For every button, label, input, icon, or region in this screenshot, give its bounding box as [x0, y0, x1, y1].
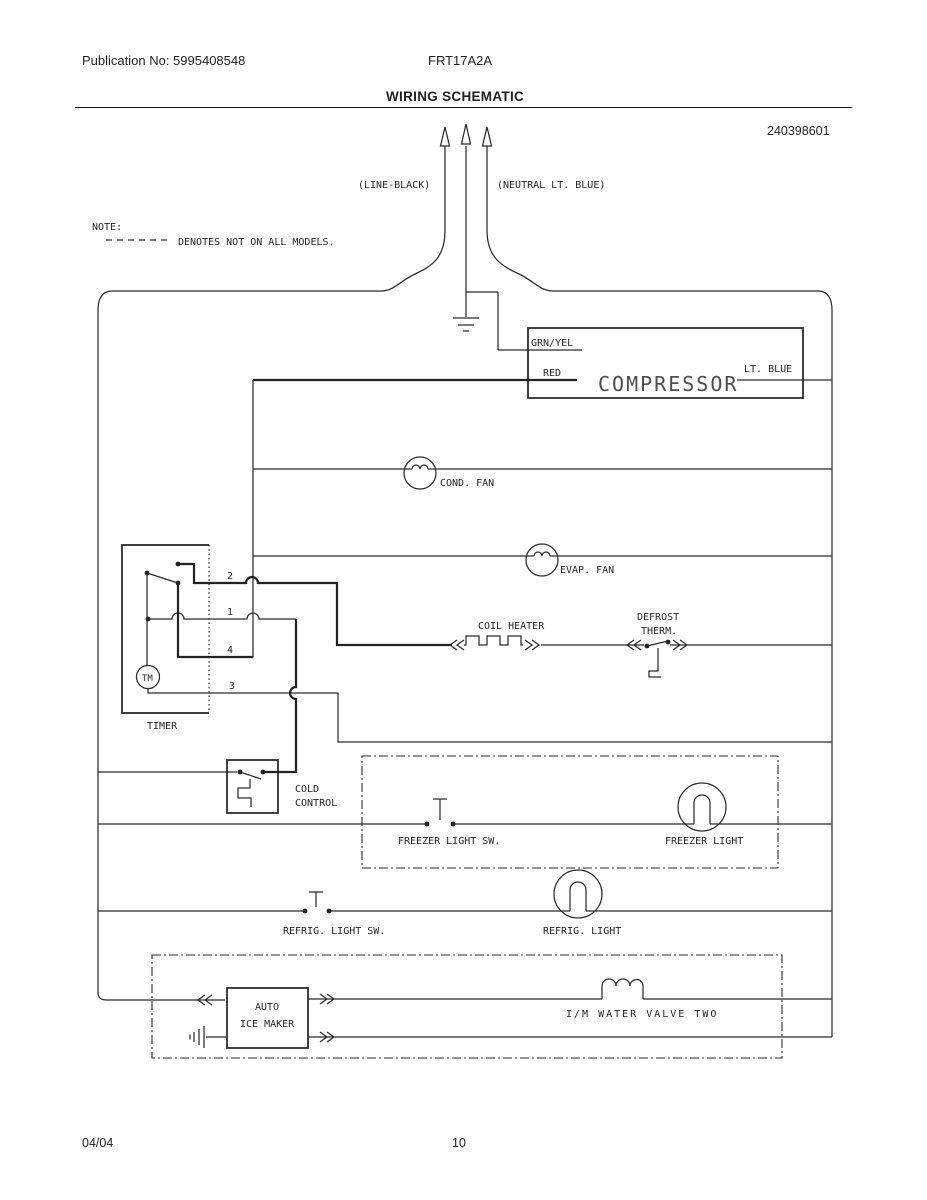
- earth-ground-icon: [453, 292, 479, 331]
- footer-page-number: 10: [452, 1136, 466, 1150]
- neutral-label: (NEUTRAL LT. BLUE): [497, 180, 605, 191]
- line-black-label: (LINE-BLACK): [358, 180, 430, 191]
- footer-date: 04/04: [82, 1136, 113, 1150]
- freezer-light-switch-icon: [433, 799, 447, 820]
- ice-maker-box: [227, 988, 308, 1048]
- defrost-label-2: THERM.: [641, 626, 677, 637]
- power-plug: (LINE-BLACK) (NEUTRAL LT. BLUE): [358, 124, 605, 191]
- evap-fan-label: EVAP. FAN: [560, 565, 614, 576]
- coil-heater-label: COIL HEATER: [478, 621, 545, 632]
- ice-maker-optional-box: [152, 955, 782, 1058]
- plug-prong-ground-icon: [462, 124, 471, 144]
- defrost-label-1: DEFROST: [637, 612, 679, 623]
- left-rail-wire: [98, 146, 445, 1000]
- red-label: RED: [543, 368, 561, 379]
- terminal1-wire: [148, 613, 296, 619]
- evap-fan-motor-icon: [526, 544, 558, 576]
- connector-left-icon: [450, 640, 464, 650]
- terminal2-wire: [178, 564, 452, 645]
- terminal-3-label: 3: [229, 681, 235, 692]
- timer-motor-label: TM: [142, 674, 153, 684]
- lt-blue-label: LT. BLUE: [744, 364, 792, 375]
- refrig-light-label: REFRIG. LIGHT: [543, 926, 621, 937]
- terminal-2-label: 2: [227, 571, 233, 582]
- ice-maker-label-2: ICE MAKER: [240, 1019, 295, 1030]
- chassis-ground-icon: [190, 1026, 204, 1048]
- cold-control-label-2: CONTROL: [295, 798, 337, 809]
- ice-maker-circuit: AUTO ICE MAKER I/M WATER VALVE TWO: [152, 955, 832, 1058]
- cold-control-bellows-icon: [238, 779, 251, 807]
- plug-prong-neutral-icon: [483, 127, 492, 146]
- terminal-1-label: 1: [227, 607, 233, 618]
- cond-fan-motor-icon: [404, 457, 436, 489]
- connector-right-icon: [525, 640, 539, 650]
- right-rail-wire: [487, 146, 832, 1037]
- refrig-light-circuit: REFRIG. LIGHT SW. REFRIG. LIGHT: [98, 870, 832, 937]
- cond-fan: COND. FAN: [253, 457, 832, 489]
- therm-sensor-icon: [649, 648, 661, 677]
- freezer-light-filament-icon: [694, 795, 710, 824]
- ground-circuit: [453, 146, 582, 350]
- refrig-light-filament-icon: [570, 882, 586, 911]
- ice-maker-label-1: AUTO: [255, 1002, 279, 1013]
- cold-control-label-1: COLD: [295, 784, 319, 795]
- terminal-4-label: 4: [227, 645, 233, 656]
- part-number: 240398601: [767, 124, 830, 138]
- evap-fan: EVAP. FAN: [253, 544, 832, 576]
- water-valve-label: I/M WATER VALVE TWO: [566, 1009, 718, 1020]
- cold-control-box: [227, 760, 278, 813]
- defrost-circuit: COIL HEATER DEFROST THERM.: [450, 612, 832, 677]
- note-text: DENOTES NOT ON ALL MODELS.: [178, 237, 335, 248]
- plug-prong-line-icon: [441, 127, 450, 146]
- timer-label: TIMER: [147, 721, 178, 732]
- schematic-page: Publication No: 5995408548 FRT17A2A WIRI…: [0, 0, 927, 1200]
- water-valve-coil-icon: [602, 979, 643, 999]
- grn-yel-label: GRN/YEL: [531, 338, 573, 349]
- cond-fan-label: COND. FAN: [440, 478, 494, 489]
- wiring-schematic-drawing: 240398601 NOTE: DENOTES NOT ON ALL MODEL…: [0, 0, 927, 1200]
- terminal3-wire: [148, 689, 832, 742]
- timer-box: [122, 545, 209, 713]
- refrig-light-switch-label: REFRIG. LIGHT SW.: [283, 926, 385, 937]
- terminal4-wire: [178, 585, 253, 657]
- freezer-light-circuit: FREEZER LIGHT SW. FREEZER LIGHT: [98, 756, 832, 868]
- cold-control-feed-wire: [265, 619, 296, 772]
- defrost-timer: TM 2 1 4 3 TIMER: [122, 545, 832, 772]
- freezer-light-switch-label: FREEZER LIGHT SW.: [398, 836, 500, 847]
- freezer-light-bulb-icon: [678, 783, 726, 831]
- cold-control: COLD CONTROL: [98, 760, 337, 813]
- compressor: GRN/YEL RED COMPRESSOR LT. BLUE: [253, 328, 832, 398]
- coil-heater-icon: [464, 636, 523, 645]
- cold-control-blade-icon: [240, 772, 261, 779]
- freezer-optional-box: [362, 756, 778, 868]
- refrig-light-switch-icon: [309, 892, 323, 907]
- compressor-label: COMPRESSOR: [598, 372, 738, 396]
- defrost-therm-contact-icon: [647, 641, 668, 646]
- refrig-light-bulb-icon: [554, 870, 602, 918]
- timer-switch-blade-icon: [147, 573, 178, 583]
- note-label: NOTE:: [92, 222, 122, 233]
- freezer-light-label: FREEZER LIGHT: [665, 836, 743, 847]
